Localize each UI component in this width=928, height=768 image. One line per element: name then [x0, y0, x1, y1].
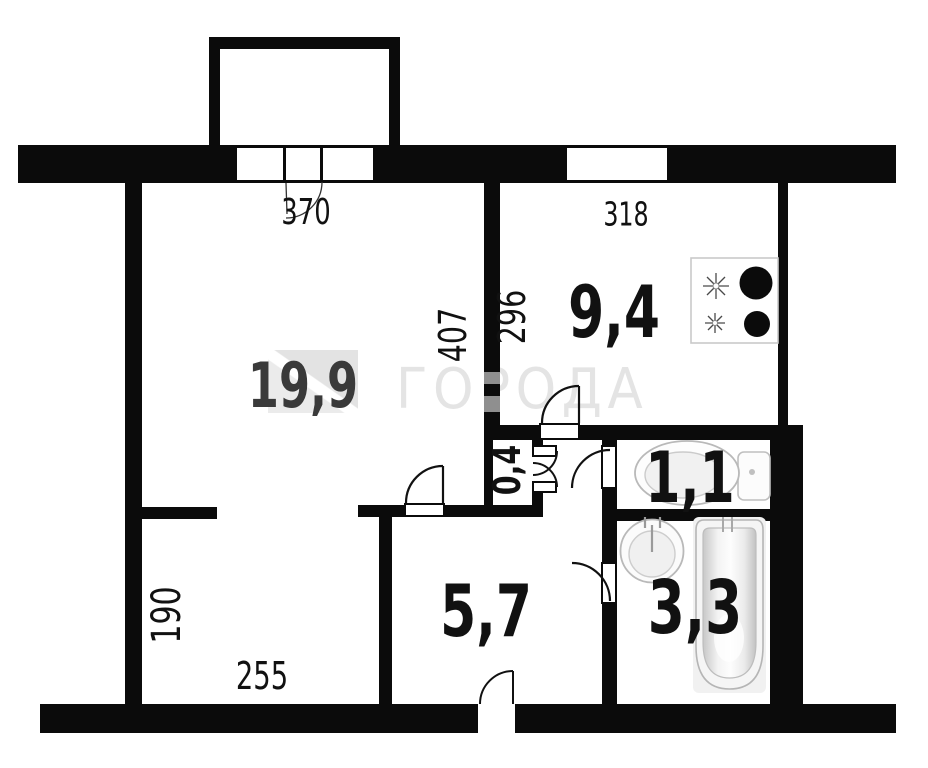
toilet-door-arc — [572, 450, 610, 488]
kitchen-door-arc — [542, 386, 579, 423]
room-label-living: 19,9 — [248, 355, 358, 417]
dim-living-depth: 407 — [434, 308, 472, 362]
floor-plan: ГОРОДА — [0, 0, 928, 768]
burner-large — [740, 267, 773, 300]
stove-icon — [691, 258, 778, 343]
dim-kitchen-depth: 296 — [493, 290, 531, 344]
dim-living-width: 370 — [281, 195, 330, 231]
room-label-bathroom: 3,3 — [648, 571, 742, 645]
dim-kitchen-width: 318 — [603, 198, 648, 231]
living-door-arc — [406, 466, 443, 503]
room-label-hallway: 5,7 — [440, 575, 532, 647]
burner-small — [744, 311, 770, 337]
closet-door-arcs — [533, 451, 557, 487]
dim-alcove-width: 255 — [236, 657, 288, 695]
bathroom-door-arc — [572, 563, 610, 601]
entrance-door-arc — [480, 671, 513, 704]
dim-alcove-depth: 190 — [147, 586, 187, 643]
room-label-kitchen: 9,4 — [568, 276, 660, 348]
room-label-toilet: 1,1 — [645, 443, 734, 513]
room-label-closet: 0,4 — [488, 445, 526, 495]
